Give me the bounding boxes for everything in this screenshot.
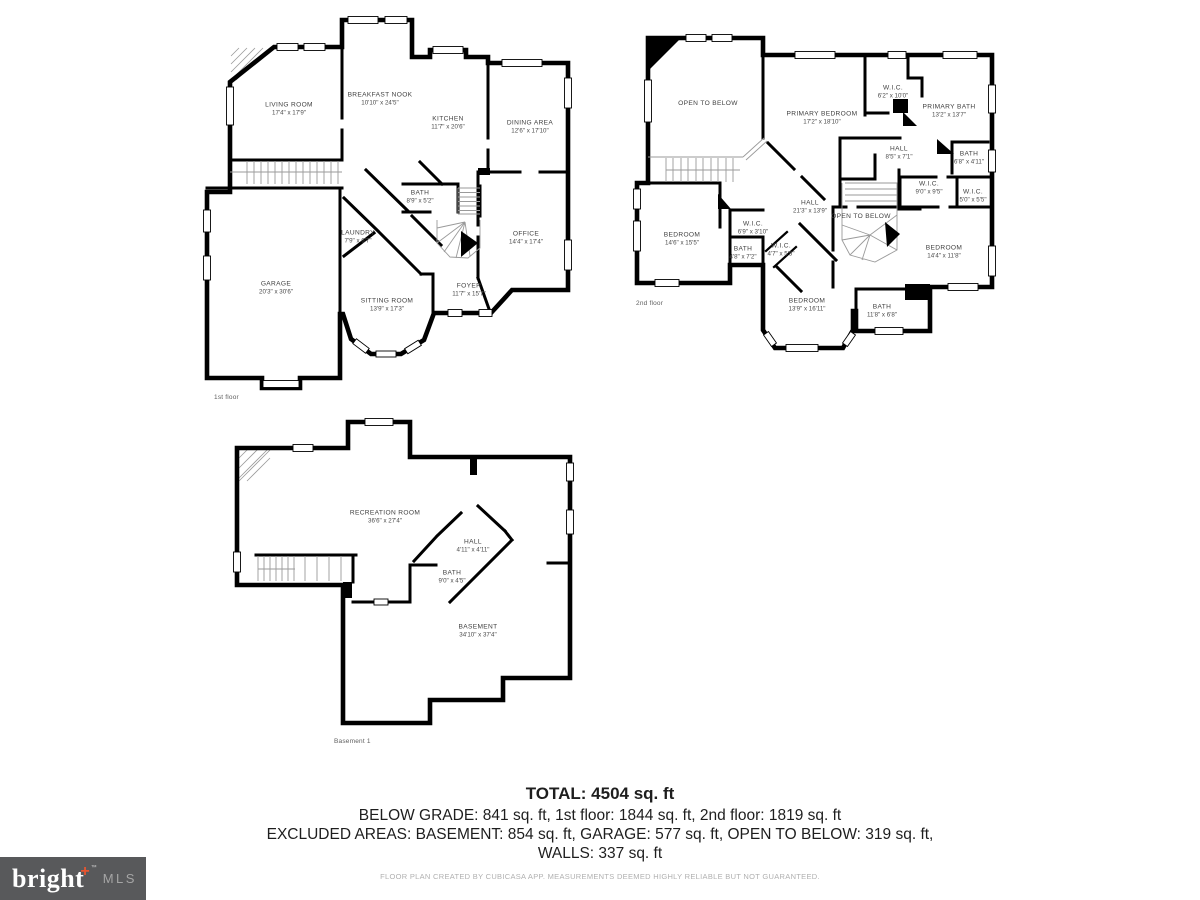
first-floor-caption: 1st floor xyxy=(214,394,239,401)
room-label-laundry: LAUNDRY 7'9" x 6'7" xyxy=(341,230,375,245)
room-label-basement: BASEMENT 34'10" x 37'4" xyxy=(458,624,497,639)
room-label-bedroom-bottom: BEDROOM 13'9" x 16'11" xyxy=(789,298,826,313)
room-label-wic-9x9: W.I.C. 9'0" x 9'5" xyxy=(915,181,942,196)
room-label-hall-upper: HALL 8'5" x 7'1" xyxy=(885,146,912,161)
room-label-recreation-room: RECREATION ROOM 36'6" x 27'4" xyxy=(350,510,420,525)
bright-mls-logo: bright + ™ MLS xyxy=(0,857,146,900)
total-area-line: TOTAL: 4504 sq. ft xyxy=(0,784,1200,804)
first-floor-windows xyxy=(204,17,572,388)
floorplan-drawing xyxy=(0,0,1200,900)
excluded-area-line: EXCLUDED AREAS: BASEMENT: 854 sq. ft, GA… xyxy=(0,826,1200,844)
logo-suffix-text: MLS xyxy=(103,871,137,886)
room-label-bath-4x7: BATH 4'8" x 7'2" xyxy=(729,246,756,261)
logo-trademark: ™ xyxy=(91,865,97,871)
room-label-bath-bottom: BATH 11'8" x 6'8" xyxy=(867,304,897,319)
room-label-wic-4x5: W.I.C. 4'7" x 5'5" xyxy=(767,243,794,258)
grade-area-line: BELOW GRADE: 841 sq. ft, 1st floor: 1844… xyxy=(0,807,1200,825)
room-label-primary-bath: PRIMARY BATH 13'2" x 13'7" xyxy=(923,104,976,119)
room-label-kitchen: KITCHEN 11'7" x 20'6" xyxy=(431,116,464,131)
room-label-wic-6x3: W.I.C. 6'9" x 3'10" xyxy=(738,221,769,236)
room-label-office: OFFICE 14'4" x 17'4" xyxy=(509,231,543,246)
first-floor-plan xyxy=(204,17,572,389)
room-label-hall-main: HALL 21'3" x 13'9" xyxy=(793,200,827,215)
room-label-bath-first: BATH 8'9" x 5'2" xyxy=(406,190,433,205)
floorplan-page: LIVING ROOM 17'4" x 17'9" BREAKFAST NOOK… xyxy=(0,0,1200,900)
room-label-bath-basement: BATH 9'0" x 4'5" xyxy=(438,570,465,585)
room-label-sitting-room: SITTING ROOM 13'9" x 17'3" xyxy=(361,298,414,313)
room-label-open-to-below-1: OPEN TO BELOW xyxy=(678,100,738,108)
logo-brand-text: bright xyxy=(12,864,84,894)
disclaimer-text: FLOOR PLAN CREATED BY CUBICASA APP. MEAS… xyxy=(0,872,1200,881)
walls-area-line: WALLS: 337 sq. ft xyxy=(0,845,1200,863)
room-label-open-to-below-2: OPEN TO BELOW xyxy=(831,213,891,221)
second-floor-caption: 2nd floor xyxy=(636,300,663,307)
room-label-bedroom-right: BEDROOM 14'4" x 11'8" xyxy=(926,245,963,260)
room-label-living-room: LIVING ROOM 17'4" x 17'9" xyxy=(265,102,313,117)
room-label-wic-primary: W.I.C. 6'2" x 10'0" xyxy=(878,85,909,100)
room-label-dining-area: DINING AREA 12'6" x 17'10" xyxy=(507,120,553,135)
area-summary: TOTAL: 4504 sq. ft BELOW GRADE: 841 sq. … xyxy=(0,784,1200,864)
room-label-primary-bedroom: PRIMARY BEDROOM 17'2" x 18'10" xyxy=(787,111,858,126)
room-label-bedroom-left: BEDROOM 14'6" x 15'5" xyxy=(664,232,701,247)
room-label-breakfast-nook: BREAKFAST NOOK 10'10" x 24'5" xyxy=(348,92,413,107)
room-label-foyer: FOYER 11'7" x 15'7" xyxy=(452,283,485,298)
basement-floor-plan xyxy=(234,419,574,724)
room-label-wic-5x5: W.I.C. 5'0" x 5'5" xyxy=(959,189,986,204)
logo-plus-icon: + xyxy=(80,863,89,881)
room-label-garage: GARAGE 20'3" x 30'6" xyxy=(259,281,293,296)
room-label-hall-basement: HALL 4'11" x 4'11" xyxy=(456,539,489,554)
room-label-bath-second-small: BATH 6'8" x 4'11" xyxy=(954,151,984,166)
basement-caption: Basement 1 xyxy=(334,738,371,745)
